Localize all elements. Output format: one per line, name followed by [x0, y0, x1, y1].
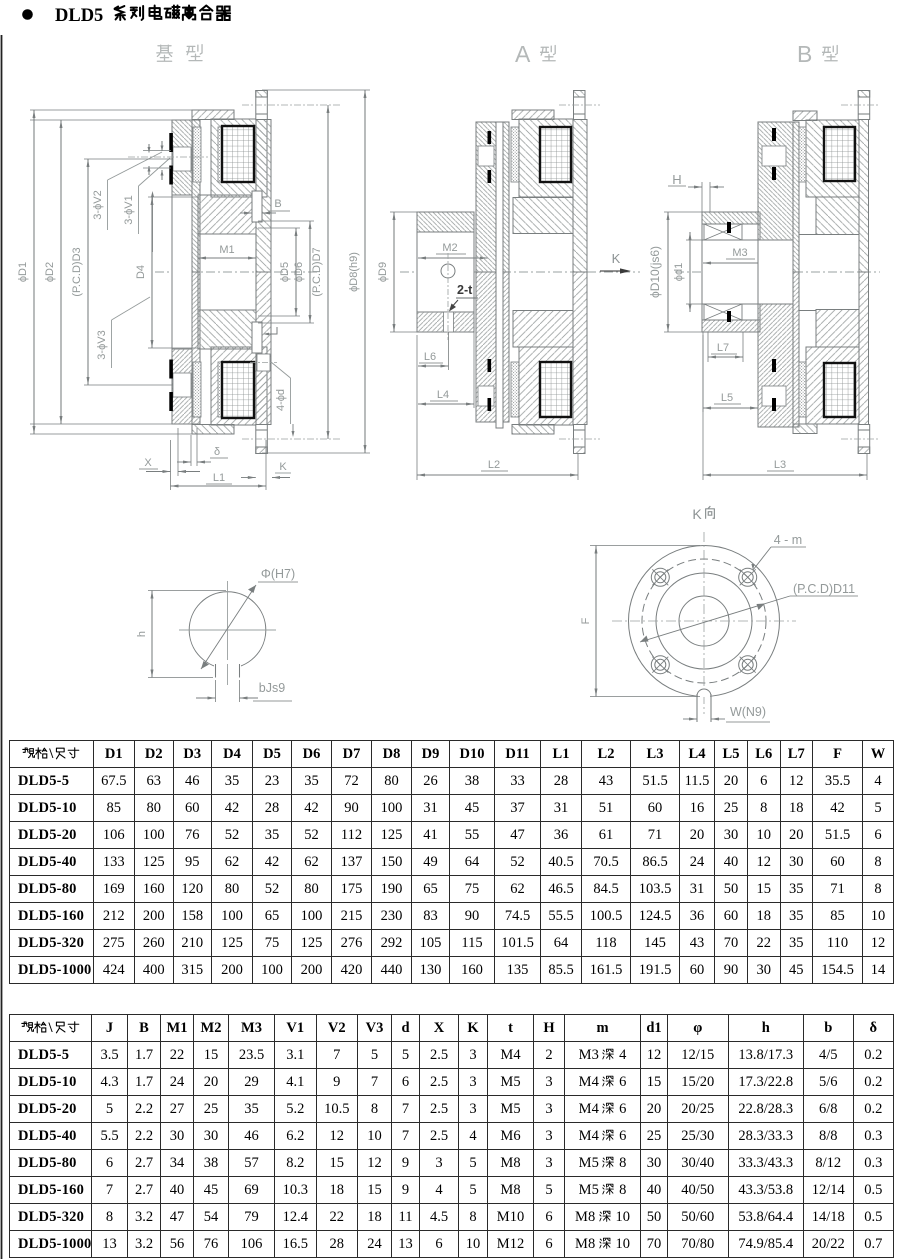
svg-text:ϕD6: ϕD6 — [293, 262, 305, 282]
svg-text:3-ϕV1: 3-ϕV1 — [123, 195, 135, 224]
svg-text:L7: L7 — [717, 342, 729, 354]
svg-text:D4: D4 — [135, 265, 147, 279]
svg-text:ϕD1: ϕD1 — [17, 262, 29, 282]
svg-text:X: X — [144, 457, 152, 469]
svg-text:4 - m: 4 - m — [774, 533, 802, 547]
svg-text:L6: L6 — [424, 351, 436, 363]
svg-text:ϕD8(h9): ϕD8(h9) — [348, 252, 360, 292]
svg-text:h: h — [136, 631, 148, 637]
svg-text:2-t: 2-t — [457, 283, 473, 297]
svg-text:ϕD9: ϕD9 — [377, 262, 389, 282]
svg-text:DLD5: DLD5 — [55, 6, 103, 26]
svg-text:L3: L3 — [774, 459, 786, 471]
svg-text:L5: L5 — [721, 392, 733, 404]
svg-text:ϕD10(js6): ϕD10(js6) — [648, 246, 662, 298]
svg-text:ϕD2: ϕD2 — [44, 262, 56, 282]
svg-text:B: B — [274, 198, 281, 210]
svg-text:B: B — [797, 41, 812, 67]
svg-text:H: H — [672, 172, 681, 187]
svg-text:K: K — [279, 461, 287, 473]
svg-text:ϕd1: ϕd1 — [673, 263, 685, 281]
svg-text:F: F — [580, 617, 592, 624]
svg-text:(P.C.D)D11: (P.C.D)D11 — [793, 582, 855, 596]
svg-text:Φ(H7): Φ(H7) — [261, 567, 295, 581]
svg-text:3-ϕV2: 3-ϕV2 — [92, 190, 104, 219]
svg-text:ϕD5: ϕD5 — [279, 262, 291, 282]
svg-text:3-ϕV3: 3-ϕV3 — [96, 330, 108, 359]
svg-text:K: K — [612, 251, 621, 266]
svg-text:L4: L4 — [437, 389, 449, 401]
svg-text:M1: M1 — [219, 244, 234, 256]
svg-text:δ: δ — [214, 446, 220, 458]
svg-text:M2: M2 — [442, 242, 457, 254]
svg-text:L2: L2 — [488, 459, 500, 471]
svg-text:4-ϕd: 4-ϕd — [275, 389, 287, 411]
svg-text:L1: L1 — [213, 472, 225, 484]
svg-text:(P.C.D)D3: (P.C.D)D3 — [71, 247, 83, 296]
svg-text:bJs9: bJs9 — [259, 681, 285, 695]
svg-text:W(N9): W(N9) — [730, 705, 766, 719]
svg-text:(P.C.D)D7: (P.C.D)D7 — [311, 247, 323, 296]
svg-text:A: A — [515, 41, 531, 67]
svg-text:K: K — [692, 506, 702, 522]
svg-text:M3: M3 — [732, 247, 747, 259]
